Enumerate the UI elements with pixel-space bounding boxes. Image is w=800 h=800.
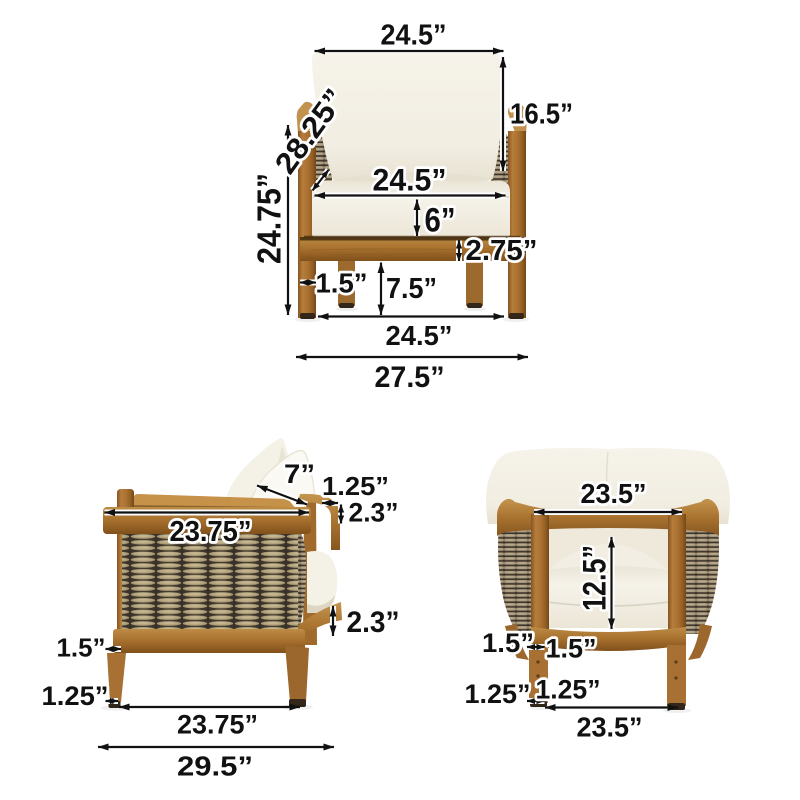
svg-text:1.5”: 1.5” [57,633,106,663]
svg-text:7.5”: 7.5” [386,273,437,305]
svg-text:23.75”: 23.75” [170,516,252,548]
svg-text:2.3”: 2.3” [349,498,399,528]
svg-text:1.25”: 1.25” [322,471,389,501]
svg-text:24.75”: 24.75” [251,173,288,264]
svg-text:1.5”: 1.5” [482,628,534,658]
svg-text:27.5”: 27.5” [375,361,445,394]
svg-text:1.5”: 1.5” [316,268,368,299]
svg-text:7”: 7” [284,459,315,489]
svg-text:1.5”: 1.5” [546,634,597,664]
svg-text:29.5”: 29.5” [177,751,253,782]
svg-text:1.25”: 1.25” [42,681,109,711]
svg-text:23.75”: 23.75” [177,710,258,740]
svg-text:6”: 6” [425,202,456,240]
svg-text:24.5”: 24.5” [381,20,447,52]
svg-text:24.5”: 24.5” [373,162,447,198]
svg-text:2.75”: 2.75” [466,235,538,267]
svg-text:1.25”: 1.25” [536,675,601,705]
svg-text:23.5”: 23.5” [581,478,647,509]
svg-text:2.3”: 2.3” [347,606,400,639]
svg-text:1.25”: 1.25” [465,679,531,709]
svg-text:12.5”: 12.5” [577,545,613,611]
svg-text:23.5”: 23.5” [577,712,643,743]
svg-text:24.5”: 24.5” [386,320,453,351]
svg-text:16.5”: 16.5” [510,99,573,131]
